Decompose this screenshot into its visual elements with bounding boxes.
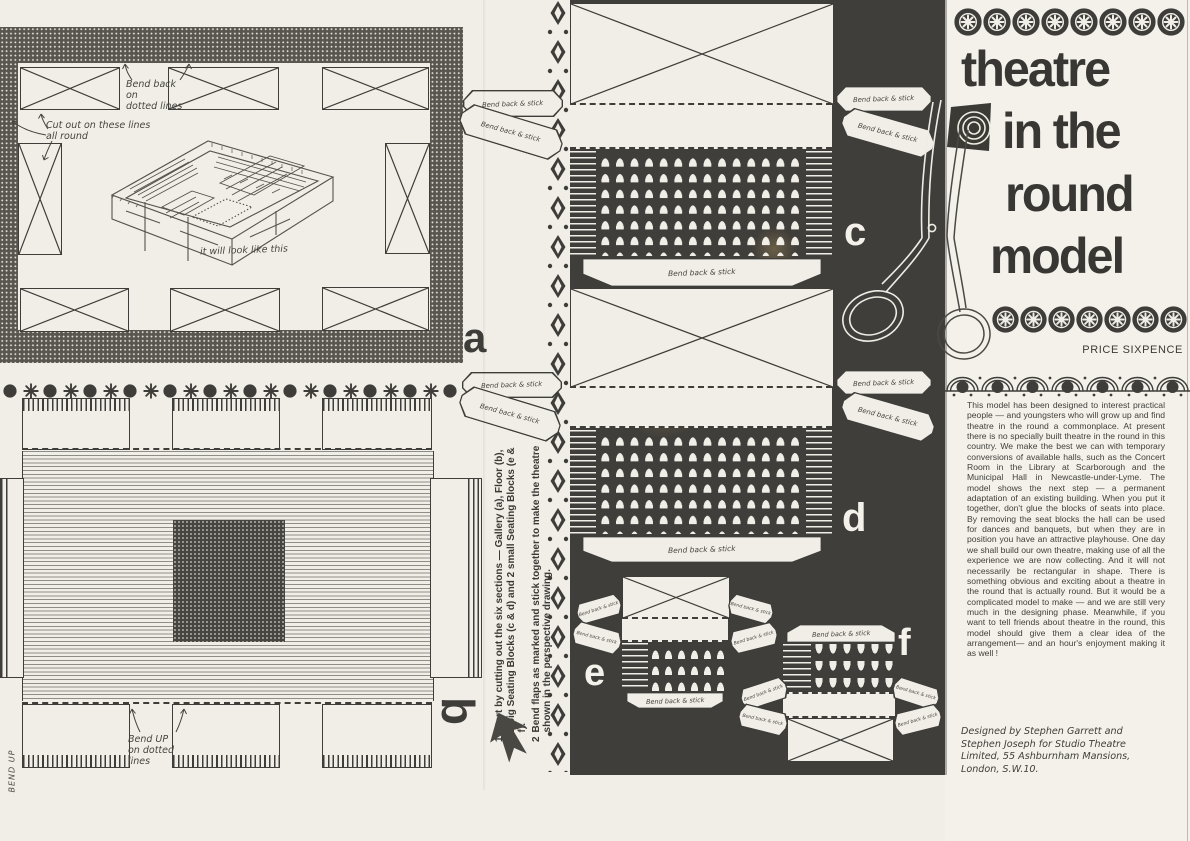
black-plate: Bend back & stick Bend back & stick Bend…	[570, 0, 945, 775]
model-sheet-scan: Bend back on dotted lines Cut out on the…	[0, 0, 1190, 841]
fold-line	[22, 448, 432, 450]
flap-label: Bend back & stick	[668, 267, 736, 278]
flap-label: Bend back & stick	[812, 628, 871, 638]
flap-label: Bend back & stick	[730, 602, 771, 617]
cutout-window	[322, 67, 429, 110]
piece-f-right-flap: Bend back & stick	[892, 703, 944, 738]
assembly-instructions: 1 Start by cutting out the six sections …	[494, 444, 548, 742]
flap-label: Bend back & stick	[733, 630, 774, 646]
piece-d-bottom-flap: Bend back & stick	[582, 536, 822, 563]
piece-c-fold-band	[570, 103, 832, 149]
direction-arrow	[483, 708, 535, 766]
flap-label: Bend back & stick	[482, 98, 543, 108]
stage-area	[173, 520, 285, 642]
piece-b-label: b	[431, 697, 485, 725]
flap-label: Bend back & stick	[646, 695, 705, 705]
flap-label: Bend back & stick	[742, 713, 783, 726]
piece-f-side	[787, 718, 894, 762]
piece-d-fold-band	[570, 386, 832, 428]
intro-paragraph: This model has been designed to interest…	[967, 400, 1165, 659]
scissors-icon	[935, 88, 1005, 368]
flap-label: Bend back & stick	[481, 380, 542, 390]
glue-tab	[322, 398, 432, 450]
flap-label: Bend back & stick	[857, 406, 918, 429]
scissors-icon	[840, 88, 945, 368]
piece-d-side	[570, 288, 834, 388]
piece-e-left-flap: Bend back & stick	[574, 592, 624, 626]
page-crease	[483, 0, 486, 790]
cutout-window	[322, 287, 429, 331]
note-arrows	[118, 60, 198, 82]
piece-e-seats	[622, 642, 728, 692]
piece-e-right-flap: Bend back & stick	[728, 621, 780, 656]
piece-f-top-flap: Bend back & stick	[786, 624, 896, 643]
title-word: model	[990, 230, 1123, 282]
title-word: in the	[1002, 105, 1120, 157]
glue-tab	[22, 398, 130, 450]
note-cut-out: Cut out on these lines all round	[46, 120, 176, 142]
piece-d-seats	[570, 428, 832, 536]
flap-label: Bend back & stick	[744, 684, 785, 703]
flap-label: Bend back & stick	[668, 544, 736, 555]
piece-c-bottom-flap: Bend back & stick	[582, 258, 822, 287]
note-bend-back: Bend back on dotted lines	[126, 79, 196, 112]
piece-d-right-flap: Bend back & stick	[836, 370, 932, 395]
piece-d-label: d	[842, 496, 866, 541]
cutout-window	[20, 288, 129, 332]
cutout-window	[20, 67, 120, 110]
piece-e-bottom-flap: Bend back & stick	[626, 692, 724, 709]
glue-tab	[322, 704, 432, 768]
piece-e-left-flap: Bend back & stick	[570, 620, 624, 657]
piece-b-floor: Bend UP on dotted lines b	[20, 396, 482, 780]
piece-f-fold-band	[783, 692, 895, 718]
flap-label: Bend back & stick	[480, 120, 541, 144]
note-bend-up: Bend UP on dotted lines	[128, 734, 198, 767]
cutout-window	[170, 288, 280, 332]
piece-c-seats	[570, 149, 832, 258]
flap-label: Bend back & stick	[579, 600, 620, 618]
flap-label: Bend back & stick	[479, 402, 540, 426]
flap-label: Bend back & stick	[895, 685, 936, 701]
cutout-window	[385, 143, 430, 254]
instruction-text: Bend flaps as marked and stick together …	[531, 444, 554, 732]
piece-c-side	[570, 3, 834, 105]
piece-e-right-flap: Bend back & stick	[726, 592, 776, 626]
price-label: PRICE SIXPENCE	[1045, 344, 1183, 356]
piece-e-label: e	[584, 652, 605, 695]
piece-f-left-flap: Bend back & stick	[736, 702, 790, 737]
note-arrow	[36, 139, 56, 163]
note-arrows	[118, 706, 198, 734]
glue-tab	[430, 478, 482, 678]
piece-f-seats	[783, 643, 895, 692]
credits-text: Designed by Stephen Garrett and Stephen …	[961, 726, 1163, 776]
note-bend-up-edge: BEND UP	[8, 733, 17, 793]
glue-tab	[22, 704, 130, 768]
piece-f-label: f	[898, 622, 911, 665]
rosette-border	[953, 6, 1187, 38]
flap-label: Bend back & stick	[897, 712, 938, 728]
title-panel: theatre in the round model	[945, 0, 1190, 841]
flap-label: Bend back & stick	[853, 377, 914, 387]
piece-e-side	[622, 576, 730, 619]
page-edge	[1187, 0, 1189, 841]
piece-e-fold-band	[622, 617, 728, 642]
glue-tab	[0, 478, 24, 678]
piece-d-right-flap: Bend back & stick	[838, 389, 939, 444]
piece-a-gallery: Bend back on dotted lines Cut out on the…	[0, 27, 463, 363]
title-word: round	[1005, 168, 1133, 220]
rosette-border	[991, 304, 1187, 335]
flap-label: Bend back & stick	[576, 631, 617, 646]
instruction-text: Start by cutting out the six sections — …	[494, 444, 529, 732]
glue-tab	[172, 398, 280, 450]
